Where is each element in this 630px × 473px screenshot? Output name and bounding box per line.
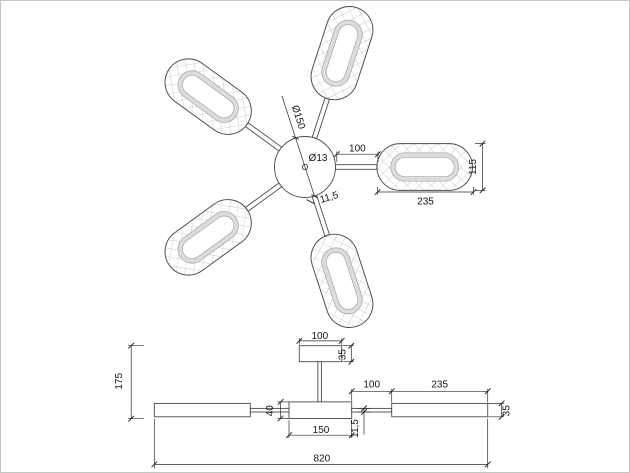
dim-shade-length-label: 235 xyxy=(417,197,434,208)
dim-arm-length-front-label: 100 xyxy=(363,379,380,390)
lamp-technical-drawing: Ø150 Ø13 100 235 11 xyxy=(1,1,630,473)
dim-overall-height-label: 175 xyxy=(114,373,125,390)
dim-shade-length-front: 235 xyxy=(392,379,491,402)
dim-shade-height-front: 35 xyxy=(488,401,512,420)
center-body xyxy=(289,402,352,419)
stem xyxy=(318,362,322,402)
dim-center-hole-label: Ø13 xyxy=(309,153,328,164)
top-view: Ø150 Ø13 100 235 11 xyxy=(156,1,486,334)
right-shade-side xyxy=(392,403,488,416)
dim-rod-thickness-label: 11,5 xyxy=(350,419,361,438)
dim-body-width-label: 150 xyxy=(313,425,330,436)
dim-body-width: 150 xyxy=(286,420,354,438)
left-shade-side xyxy=(154,403,250,416)
right-arm-rod xyxy=(352,408,392,412)
dim-overall-width-label: 820 xyxy=(313,454,330,465)
dim-body-height-label: 40 xyxy=(265,405,276,417)
dim-canopy-height-label: 35 xyxy=(338,349,349,361)
dim-overall-height: 175 xyxy=(114,343,144,422)
shade-bottom-left xyxy=(156,190,261,284)
dim-arm-length-front: 100 xyxy=(349,379,395,402)
dim-canopy-width: 100 xyxy=(297,331,345,345)
dim-arm-length-label: 100 xyxy=(349,144,366,155)
canopy xyxy=(299,346,341,362)
dim-shade-width-label: 115 xyxy=(468,159,479,175)
dim-shade-width-top-view: 115 xyxy=(468,141,486,193)
dim-shade-height-front-label: 35 xyxy=(502,405,513,417)
arm-top-left xyxy=(156,50,294,168)
shade-top-left xyxy=(156,50,261,144)
shade-bottom-right xyxy=(305,228,379,333)
arm-bottom-right xyxy=(292,189,379,334)
dim-shade-length-front-label: 235 xyxy=(431,379,448,390)
technical-drawing-page: Ø150 Ø13 100 235 11 xyxy=(0,0,630,473)
shade-right xyxy=(377,144,473,191)
front-view: 100 35 175 40 xyxy=(114,331,513,468)
dim-hub-diameter-label: Ø150 xyxy=(289,104,307,131)
dim-canopy-width-label: 100 xyxy=(311,331,328,342)
shade-top xyxy=(305,1,379,106)
dim-arm-length-top-view: 100 xyxy=(334,144,381,163)
arm-bottom-left xyxy=(156,166,294,284)
